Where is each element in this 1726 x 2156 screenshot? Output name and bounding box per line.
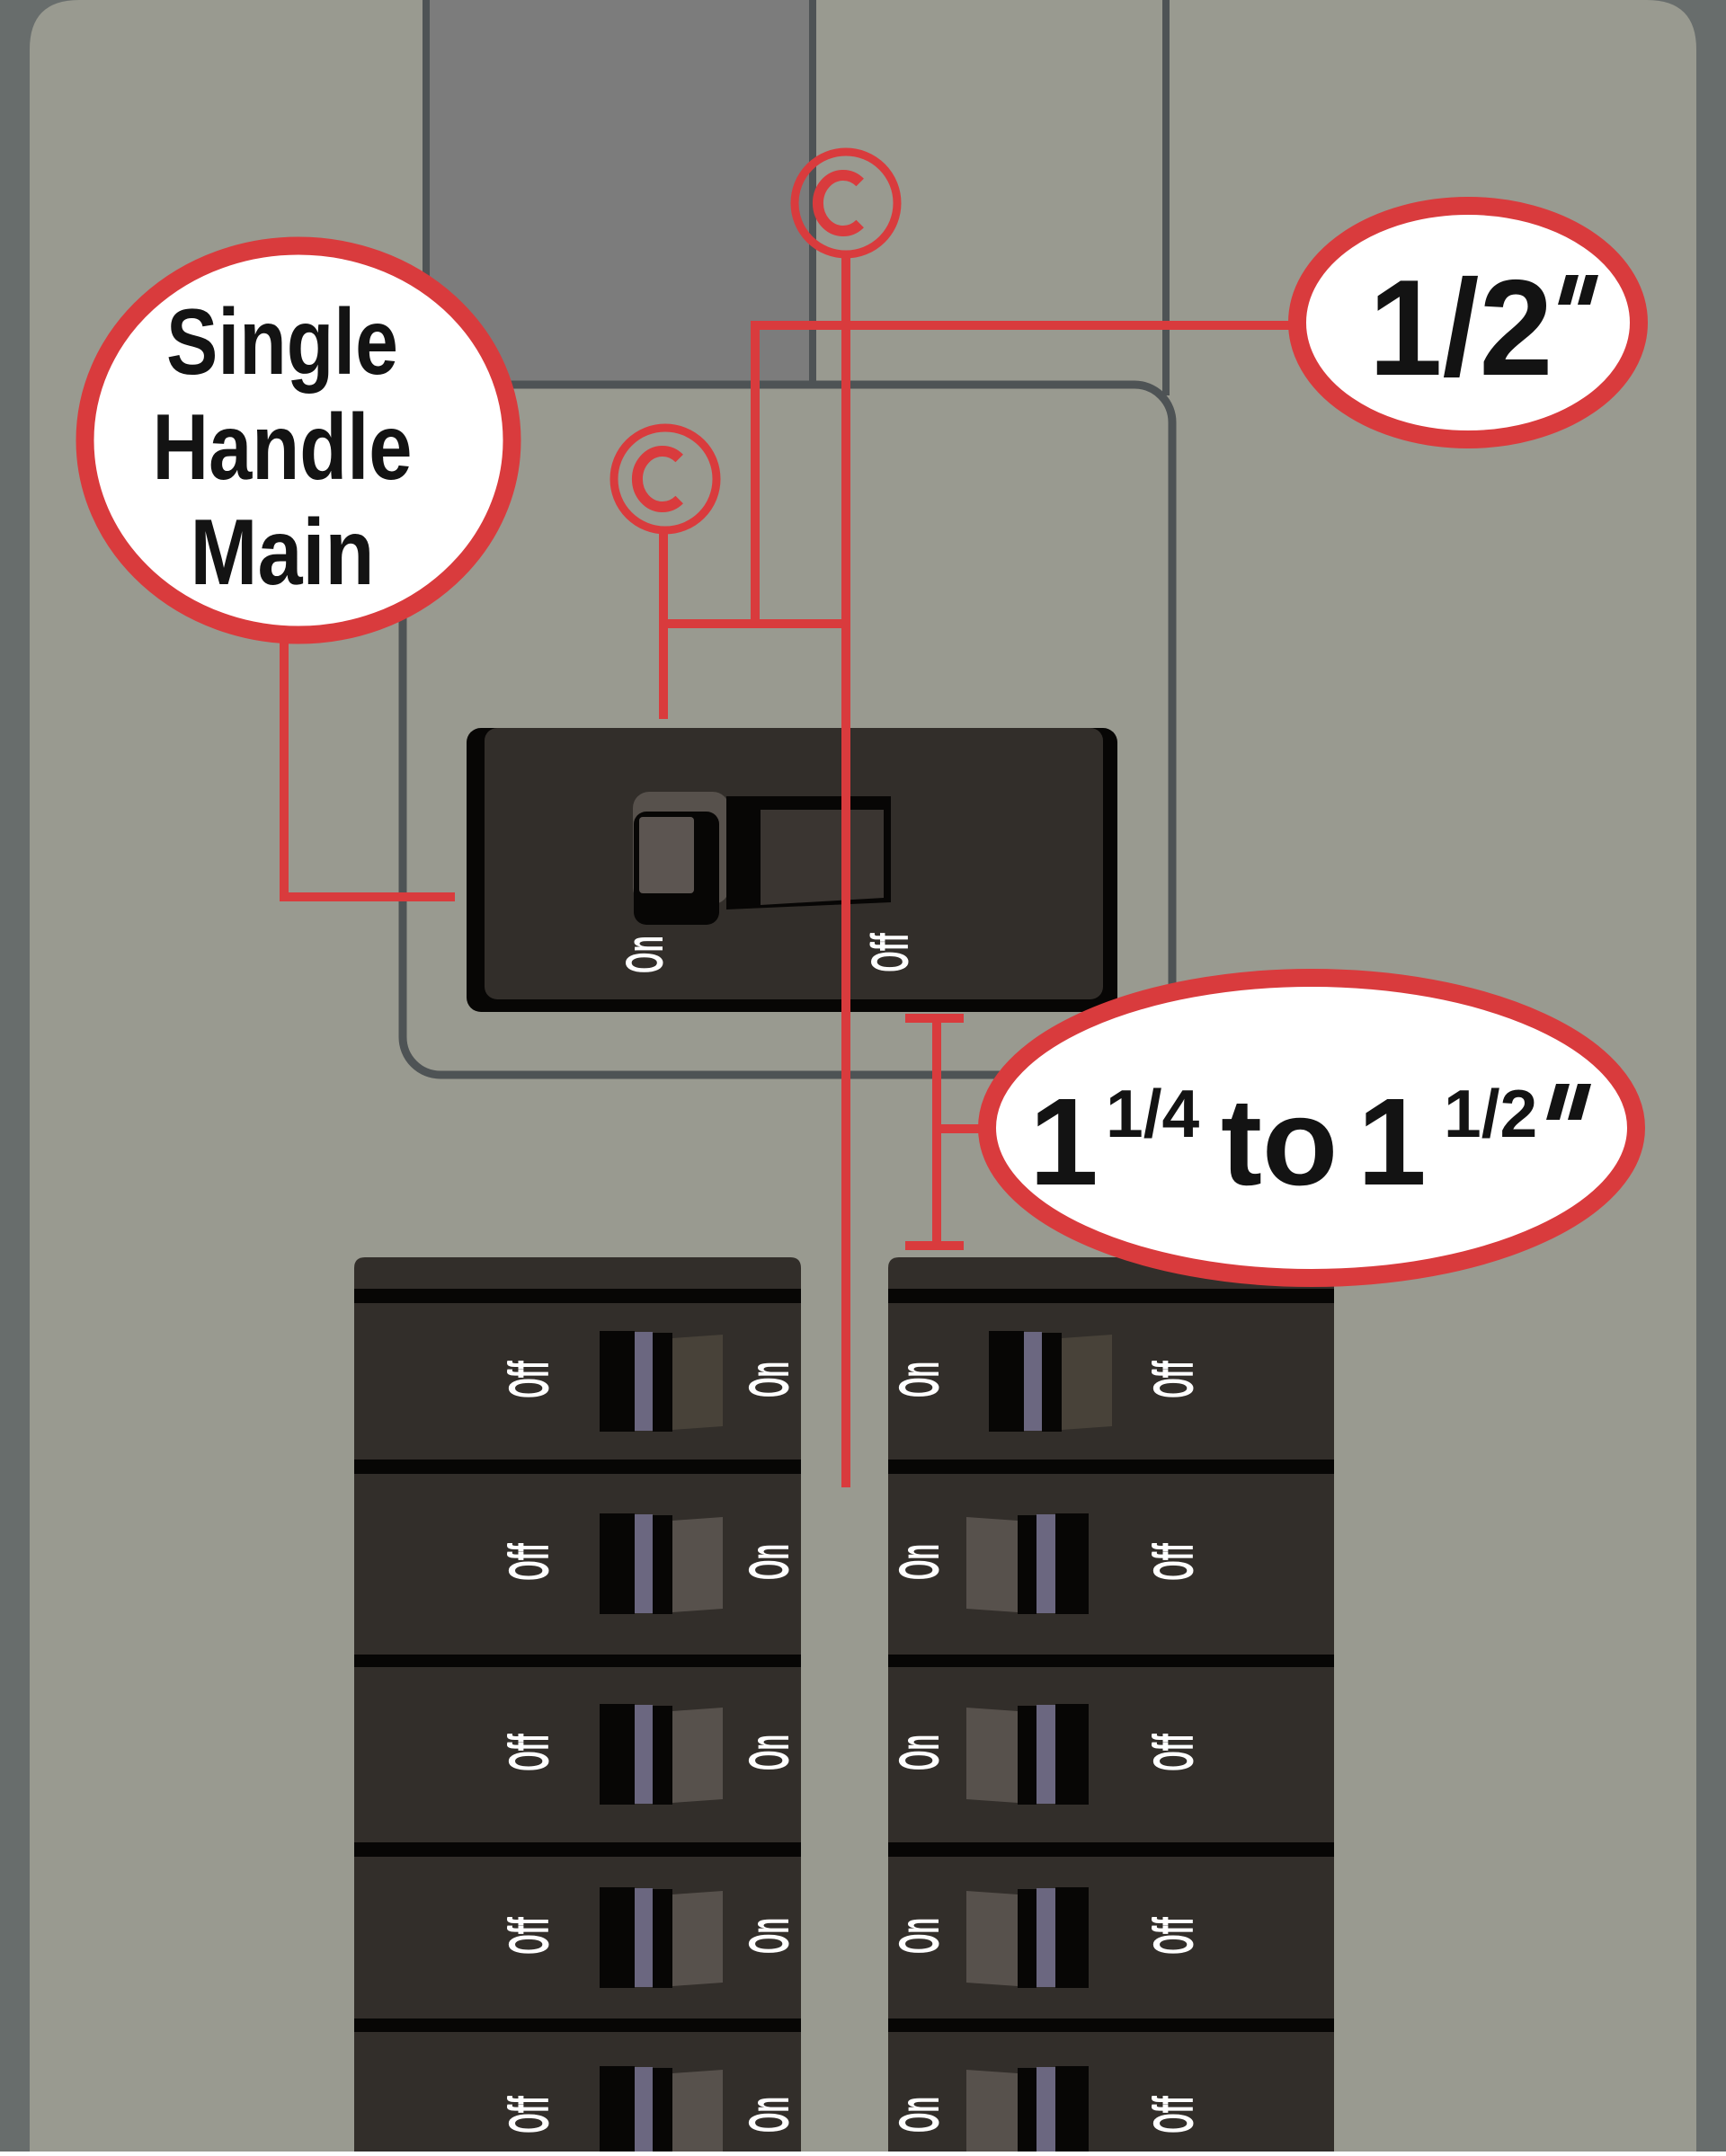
svg-text:1: 1 bbox=[1357, 1073, 1427, 1211]
svg-text:On: On bbox=[889, 1735, 951, 1770]
svg-text:1/2: 1/2 bbox=[1369, 252, 1553, 404]
svg-text:Main: Main bbox=[191, 501, 375, 605]
svg-text:On: On bbox=[739, 2097, 801, 2133]
svg-text:On: On bbox=[889, 2097, 951, 2133]
svg-text:1: 1 bbox=[1029, 1073, 1099, 1211]
svg-text:On: On bbox=[889, 1362, 951, 1397]
svg-text:Off: Off bbox=[499, 2096, 561, 2134]
svg-text:On: On bbox=[889, 1918, 951, 1954]
svg-text:Off: Off bbox=[1143, 1734, 1206, 1771]
svg-text:Off: Off bbox=[1143, 1543, 1206, 1581]
svg-text:On: On bbox=[739, 1918, 801, 1954]
svg-text:On: On bbox=[739, 1544, 801, 1580]
svg-text:1/2: 1/2 bbox=[1444, 1076, 1537, 1151]
svg-text:Off: Off bbox=[860, 933, 919, 972]
svg-text:Off: Off bbox=[1143, 1917, 1206, 1955]
svg-text:Off: Off bbox=[499, 1543, 561, 1581]
svg-text:On: On bbox=[739, 1735, 801, 1770]
svg-text:to: to bbox=[1221, 1073, 1338, 1211]
svg-text:Off: Off bbox=[499, 1361, 561, 1398]
svg-text:Off: Off bbox=[499, 1734, 561, 1771]
svg-text:On: On bbox=[889, 1544, 951, 1580]
svg-text:1/4: 1/4 bbox=[1106, 1076, 1200, 1151]
svg-text:Off: Off bbox=[1143, 2096, 1206, 2134]
svg-text:Off: Off bbox=[499, 1917, 561, 1955]
svg-text:Off: Off bbox=[1143, 1361, 1206, 1398]
svg-text:On: On bbox=[739, 1362, 801, 1397]
svg-text:Single: Single bbox=[166, 290, 398, 395]
svg-text:On: On bbox=[615, 936, 673, 973]
svg-text:Handle: Handle bbox=[153, 395, 413, 500]
